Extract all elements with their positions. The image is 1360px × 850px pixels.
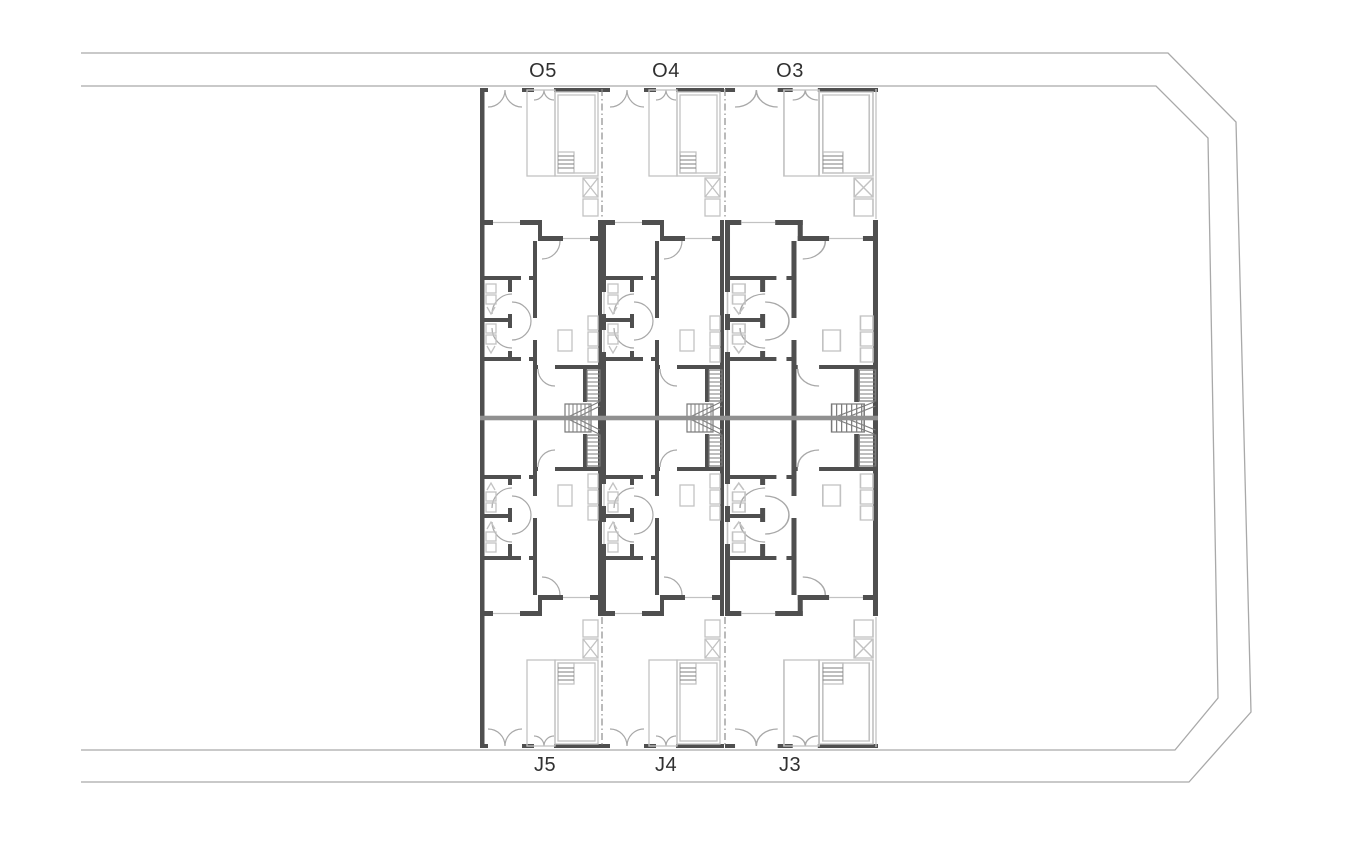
central-party-wall [480, 416, 878, 421]
unit-label-J4: J4 [655, 754, 677, 776]
unit-label-J5: J5 [534, 754, 556, 776]
unit-plan-O5 [480, 88, 602, 418]
unit-plan-O3 [725, 88, 878, 418]
unit-label-J3: J3 [779, 754, 801, 776]
unit-label-O5: O5 [529, 60, 557, 82]
unit-plan-J4 [602, 418, 724, 748]
unit-plan-J5 [480, 418, 602, 748]
floor-plan-page: O5 O4 O3 J5 J4 J3 [0, 0, 1360, 850]
unit-label-O4: O4 [652, 60, 680, 82]
floor-plan-canvas: O5 O4 O3 J5 J4 J3 [0, 0, 1360, 850]
unit-label-O3: O3 [776, 60, 804, 82]
unit-plan-J3 [725, 418, 878, 748]
unit-plan-O4 [602, 88, 724, 418]
